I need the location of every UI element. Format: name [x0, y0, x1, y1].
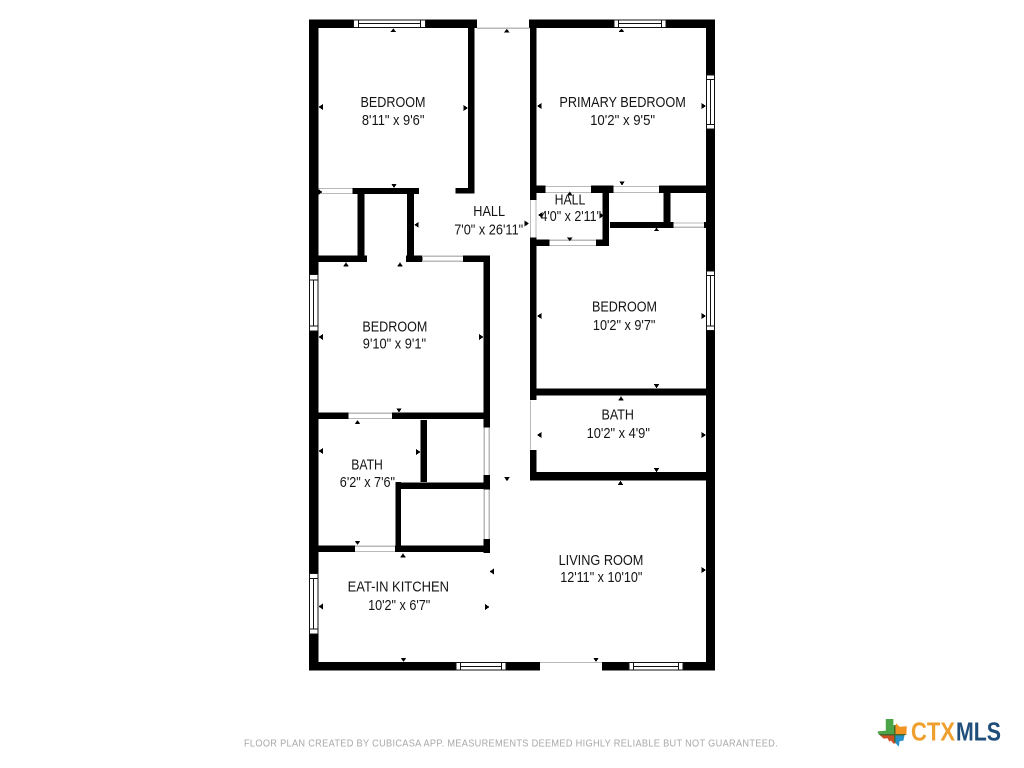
svg-text:4'0" x 2'11": 4'0" x 2'11" — [541, 208, 602, 225]
svg-text:7'0" x 26'11": 7'0" x 26'11" — [454, 221, 523, 238]
svg-text:12'11" x 10'10": 12'11" x 10'10" — [560, 569, 642, 586]
svg-text:BATH: BATH — [602, 407, 634, 424]
svg-text:6'2" x 7'6": 6'2" x 7'6" — [340, 474, 395, 491]
svg-text:BEDROOM: BEDROOM — [361, 94, 426, 111]
svg-text:PRIMARY BEDROOM: PRIMARY BEDROOM — [559, 94, 686, 111]
svg-text:EAT-IN KITCHEN: EAT-IN KITCHEN — [348, 578, 449, 595]
svg-text:10'2" x 9'7": 10'2" x 9'7" — [593, 317, 656, 334]
svg-text:MLS: MLS — [956, 719, 1001, 747]
svg-text:10'2" x 4'9": 10'2" x 4'9" — [587, 425, 650, 442]
svg-text:CTX: CTX — [911, 719, 955, 747]
svg-text:8'11" x 9'6": 8'11" x 9'6" — [362, 112, 425, 129]
svg-text:BEDROOM: BEDROOM — [592, 299, 657, 316]
svg-text:BATH: BATH — [351, 456, 383, 473]
svg-text:10'2" x 6'7": 10'2" x 6'7" — [368, 597, 430, 614]
svg-text:9'10" x 9'1": 9'10" x 9'1" — [363, 336, 426, 353]
svg-text:10'2" x 9'5": 10'2" x 9'5" — [590, 112, 655, 129]
svg-text:BEDROOM: BEDROOM — [362, 318, 427, 335]
svg-text:HALL: HALL — [473, 203, 505, 220]
svg-text:HALL: HALL — [555, 192, 586, 209]
svg-text:FLOOR PLAN CREATED BY CUBICASA: FLOOR PLAN CREATED BY CUBICASA APP. MEAS… — [244, 738, 778, 750]
svg-text:LIVING ROOM: LIVING ROOM — [559, 552, 644, 569]
